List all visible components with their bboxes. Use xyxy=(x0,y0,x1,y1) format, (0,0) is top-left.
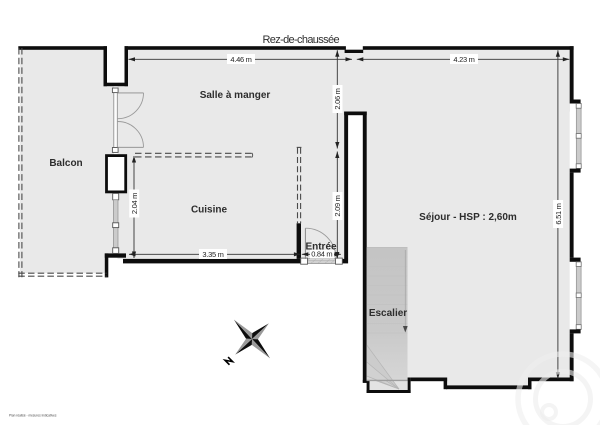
svg-text:2.04 m: 2.04 m xyxy=(130,193,139,214)
svg-text:Escalier: Escalier xyxy=(369,308,407,319)
svg-text:Cuisine: Cuisine xyxy=(191,204,228,215)
svg-text:Balcon: Balcon xyxy=(49,158,82,169)
svg-text:Salle à manger: Salle à manger xyxy=(200,90,271,101)
svg-text:4.46 m: 4.46 m xyxy=(230,55,251,64)
svg-text:6.51 m: 6.51 m xyxy=(554,203,563,224)
svg-text:3.35 m: 3.35 m xyxy=(202,250,223,259)
svg-text:2.06 m: 2.06 m xyxy=(333,88,342,109)
svg-text:Entrée: Entrée xyxy=(305,242,337,253)
svg-text:Plan réalisé - mesures indicat: Plan réalisé - mesures indicatives xyxy=(9,414,57,418)
svg-text:4.23 m: 4.23 m xyxy=(453,55,474,64)
svg-text:Rez-de-chaussée: Rez-de-chaussée xyxy=(262,34,339,46)
svg-text:2.09 m: 2.09 m xyxy=(333,195,342,216)
svg-text:Séjour - HSP : 2,60m: Séjour - HSP : 2,60m xyxy=(419,212,517,223)
